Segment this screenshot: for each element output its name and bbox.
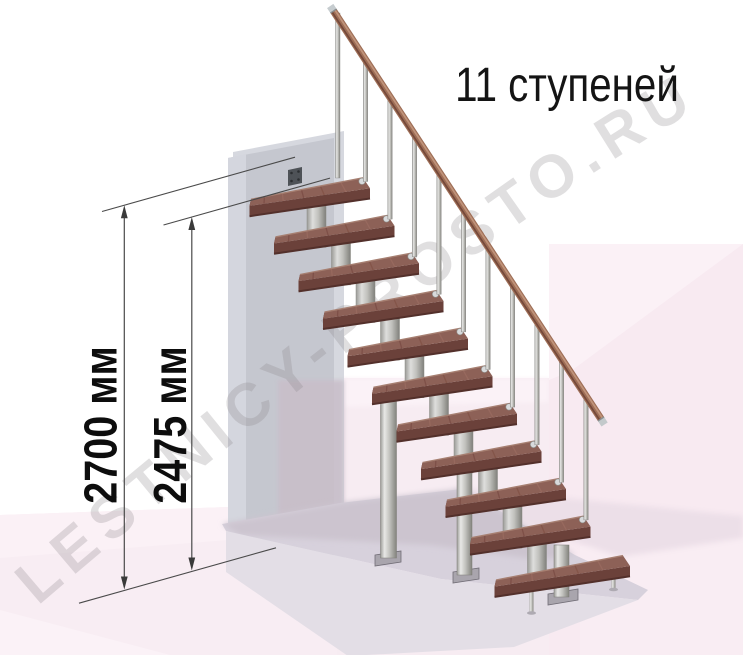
svg-text:11 ступеней: 11 ступеней	[455, 59, 679, 112]
svg-text:2475 мм: 2475 мм	[145, 346, 196, 503]
svg-text:2700 мм: 2700 мм	[76, 346, 127, 503]
